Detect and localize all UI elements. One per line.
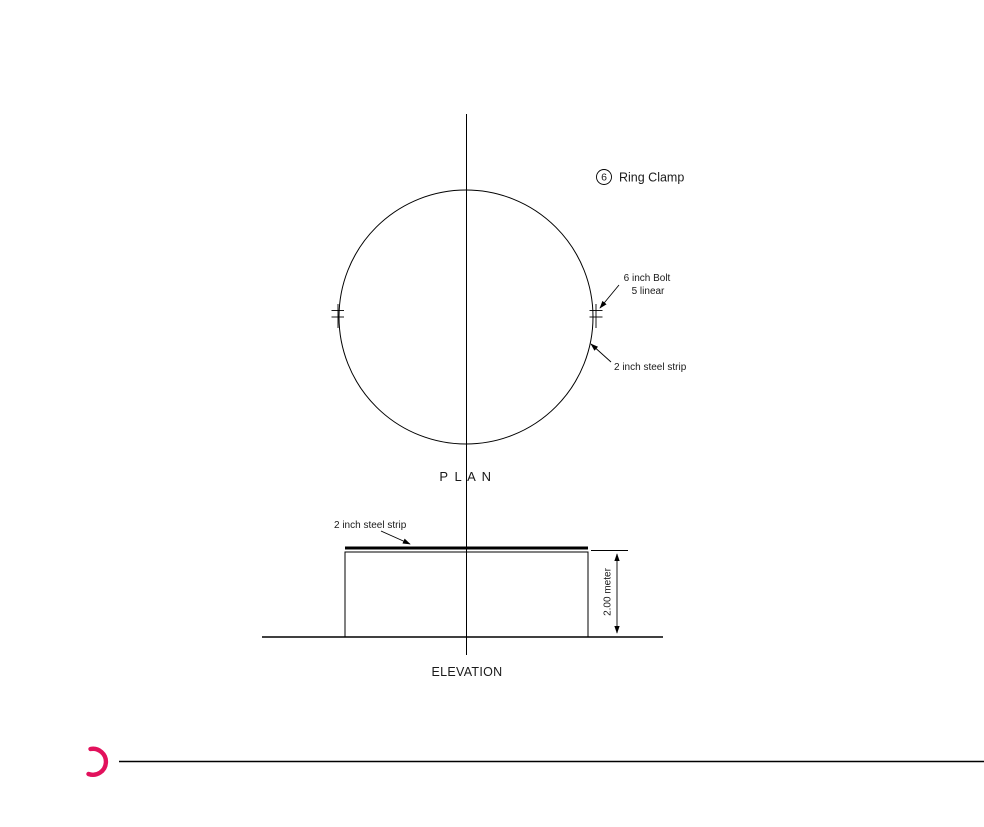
title-callout: 6 Ring Clamp [597,170,685,185]
elevation-strip-annotation: 2 inch steel strip [334,520,410,544]
bolt-mark-left [332,304,345,328]
height-dimension: 2.00 meter [591,551,628,634]
plan-strip-leader-line [591,344,611,362]
elevation-strip-leader-line [381,531,410,544]
detail-number: 6 [601,172,607,184]
detail-title-label: Ring Clamp [619,171,684,185]
elevation-steel-strip-bar [345,547,588,550]
elevation-caption: ELEVATION [431,665,502,679]
elevation-strip-label: 2 inch steel strip [334,520,407,531]
bolt-annotation-line1: 6 inch Bolt [624,273,671,284]
bolt-annotation-line2: 5 linear [632,286,665,297]
bolt-leader-line [600,285,619,308]
bolt-annotation: 6 inch Bolt 5 linear [600,273,671,308]
drawing-sheet: 6 Ring Clamp 6 inch Bolt 5 linear 2 inch… [0,0,984,827]
plan-strip-annotation: 2 inch steel strip [591,344,687,373]
plan-strip-label: 2 inch steel strip [614,362,687,373]
plan-caption: P L A N [439,469,492,484]
footer-logo-arc [89,749,106,775]
dimension-value: 2.00 meter [603,567,614,615]
drawing-canvas: 6 Ring Clamp 6 inch Bolt 5 linear 2 inch… [0,0,984,827]
